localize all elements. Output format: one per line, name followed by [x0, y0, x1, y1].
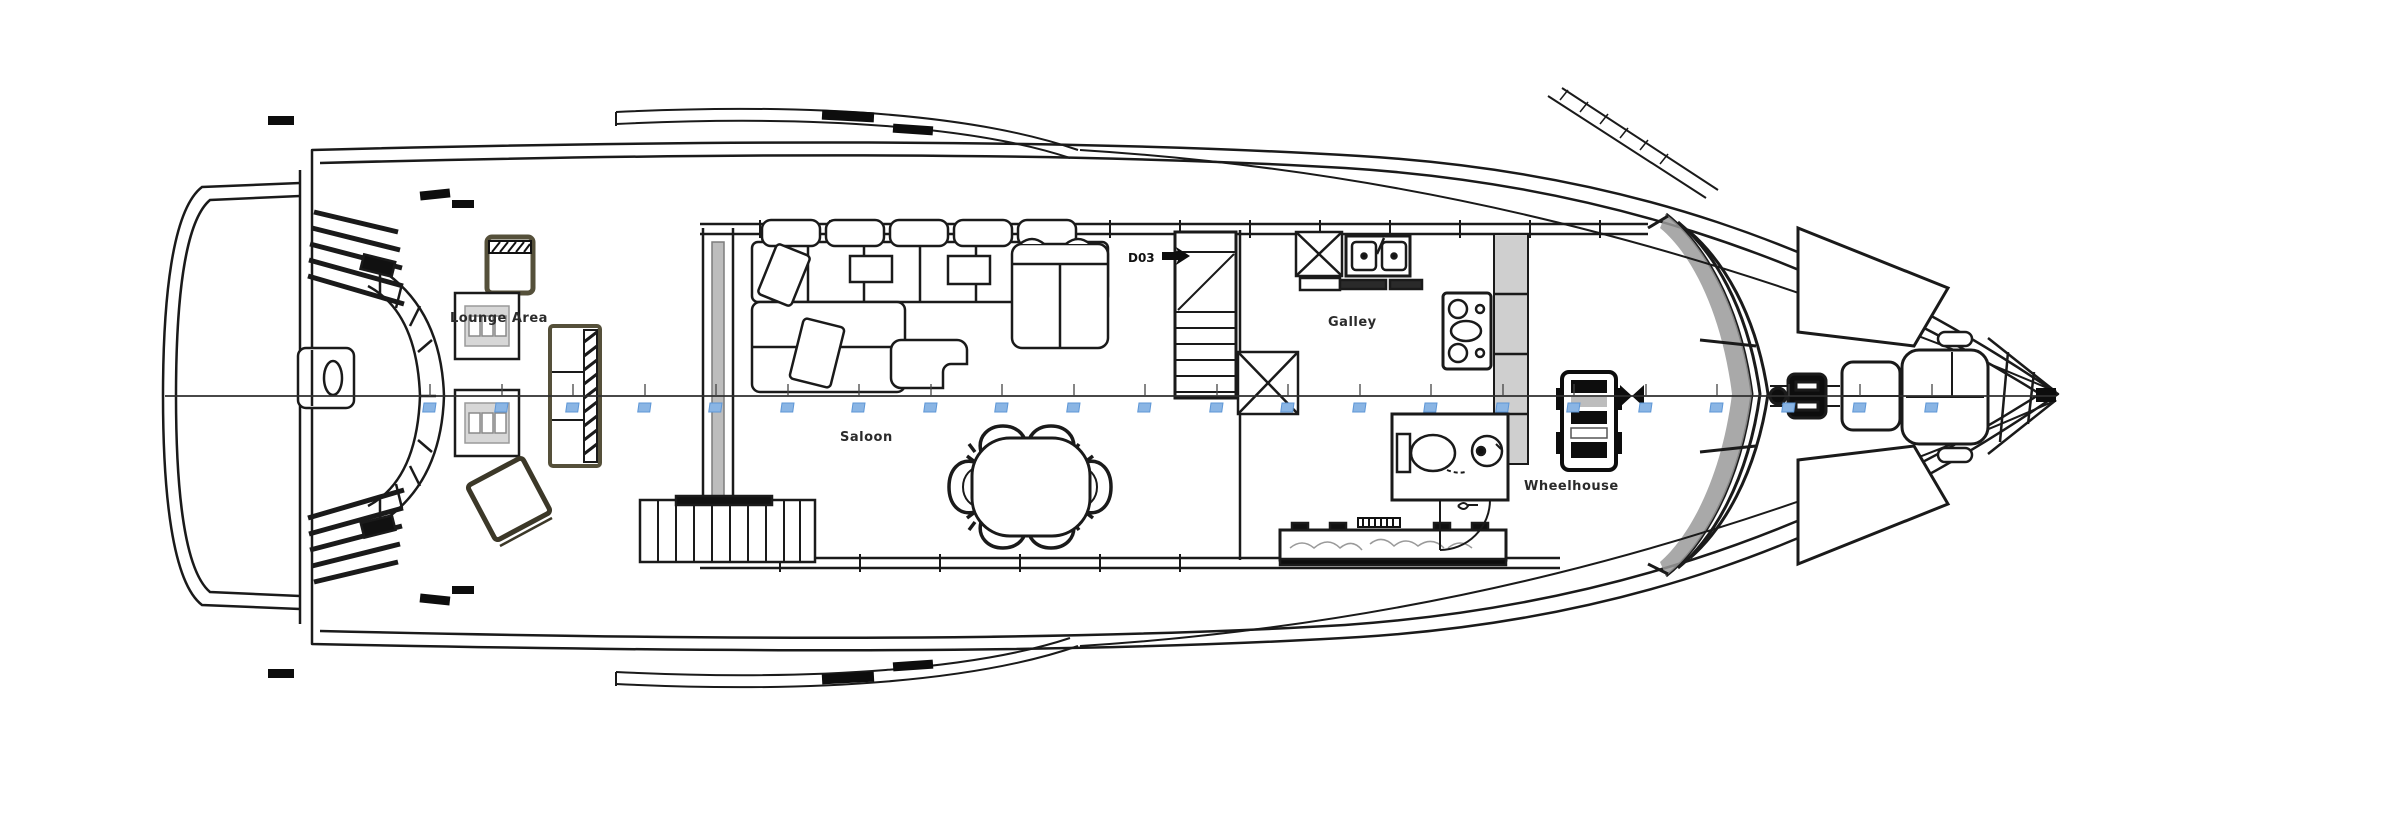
helm-console	[1556, 372, 1622, 470]
transom-console	[298, 348, 354, 408]
station-marker	[1853, 403, 1866, 412]
station-marker	[1353, 403, 1366, 412]
deck-plan-drawing: Lounge Area	[0, 0, 2400, 817]
side-deck-stairs	[640, 496, 815, 562]
windshield	[1548, 88, 1768, 576]
station-marker	[1496, 403, 1509, 412]
lounge-furniture	[455, 237, 600, 546]
station-marker	[1710, 403, 1723, 412]
station-marker	[1925, 403, 1938, 412]
station-marker	[924, 403, 937, 412]
galley-island	[1280, 518, 1506, 565]
station-marker	[709, 403, 722, 412]
lounge-area-label: Lounge Area	[450, 311, 548, 326]
galley-label: Galley	[1328, 315, 1377, 330]
galley	[1238, 230, 1528, 565]
station-marker	[1281, 403, 1294, 412]
island-grill	[1358, 518, 1400, 527]
station-marker	[495, 403, 508, 412]
yacht-deck-plan: Lounge Area	[0, 0, 2400, 817]
station-marker	[1138, 403, 1151, 412]
dining-set	[949, 426, 1111, 548]
station-marker	[423, 403, 436, 412]
station-marker	[1210, 403, 1223, 412]
washroom-sink	[1472, 436, 1502, 466]
coffee-table	[891, 340, 967, 388]
saloon-sofa-right	[1012, 239, 1108, 348]
wheelhouse-label: Wheelhouse	[1524, 479, 1619, 494]
stairs-code-label: D03	[1128, 251, 1155, 265]
station-marker	[566, 403, 579, 412]
bow-sunpad	[1902, 350, 1988, 444]
station-marker	[852, 403, 865, 412]
station-marker	[638, 403, 651, 412]
station-marker	[1067, 403, 1080, 412]
station-marker	[1782, 403, 1795, 412]
station-marker	[1639, 403, 1652, 412]
saloon-label: Saloon	[840, 430, 893, 445]
station-marker	[1424, 403, 1437, 412]
hardtop-overhang	[616, 109, 1078, 687]
cooktop	[1443, 293, 1491, 369]
station-marker	[781, 403, 794, 412]
station-marker	[995, 403, 1008, 412]
station-marker	[1567, 403, 1580, 412]
galley-sink	[1340, 236, 1422, 289]
